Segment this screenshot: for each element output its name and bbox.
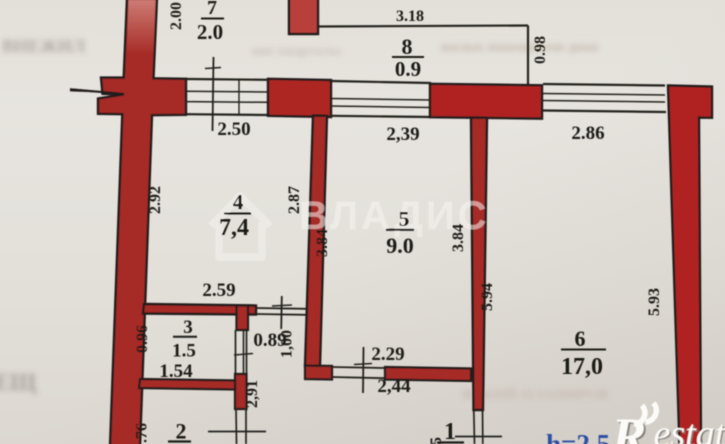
svg-text:2,39: 2,39: [386, 124, 419, 145]
svg-text:17,0: 17,0: [561, 354, 603, 380]
svg-text:2.86: 2.86: [571, 123, 604, 144]
svg-text:0.9: 0.9: [395, 57, 421, 81]
svg-text:ние кварталы: ние кварталы: [252, 44, 341, 59]
svg-text:h=2,5: h=2,5: [546, 429, 610, 444]
svg-text:0.96: 0.96: [134, 325, 151, 353]
svg-text:жилых помещlarem дома: жилых помещlarem дома: [440, 40, 598, 55]
svg-text:.76: .76: [134, 423, 151, 443]
svg-text:ВНЕЖИЛ: ВНЕЖИЛ: [2, 36, 86, 56]
svg-text:3.84: 3.84: [450, 224, 467, 252]
svg-text:2.92: 2.92: [147, 186, 164, 214]
svg-text:2.29: 2.29: [371, 344, 404, 365]
svg-text:3.18: 3.18: [396, 8, 424, 25]
svg-text:3.84: 3.84: [314, 229, 331, 257]
svg-text:5.94: 5.94: [479, 283, 496, 311]
svg-text:1.5: 1.5: [172, 341, 196, 362]
svg-text:1,00: 1,00: [279, 330, 296, 358]
svg-text:9.0: 9.0: [386, 233, 414, 258]
svg-text:4: 4: [233, 190, 244, 214]
svg-text:6: 6: [575, 326, 586, 351]
svg-text:8: 8: [402, 34, 413, 59]
svg-text:0.98: 0.98: [532, 36, 549, 64]
svg-text:2,44: 2,44: [377, 376, 411, 397]
svg-text:estate: estate: [654, 413, 725, 444]
svg-text:ЕЩ: ЕЩ: [0, 370, 37, 396]
svg-text:2.59: 2.59: [202, 280, 235, 301]
svg-text:2.87: 2.87: [286, 186, 303, 214]
svg-text:2,91: 2,91: [244, 380, 261, 408]
svg-text:2.0: 2.0: [197, 20, 223, 44]
svg-text:2: 2: [176, 419, 187, 444]
svg-text:1: 1: [444, 419, 456, 444]
svg-text:7: 7: [207, 0, 217, 19]
svg-text:2.00: 2.00: [168, 2, 185, 30]
svg-text:R: R: [611, 409, 647, 444]
svg-text:2.50: 2.50: [217, 119, 250, 140]
svg-text:5.93: 5.93: [646, 288, 663, 316]
svg-text:7,4: 7,4: [219, 215, 249, 241]
svg-text:3: 3: [183, 317, 193, 338]
svg-text:5: 5: [399, 207, 410, 231]
